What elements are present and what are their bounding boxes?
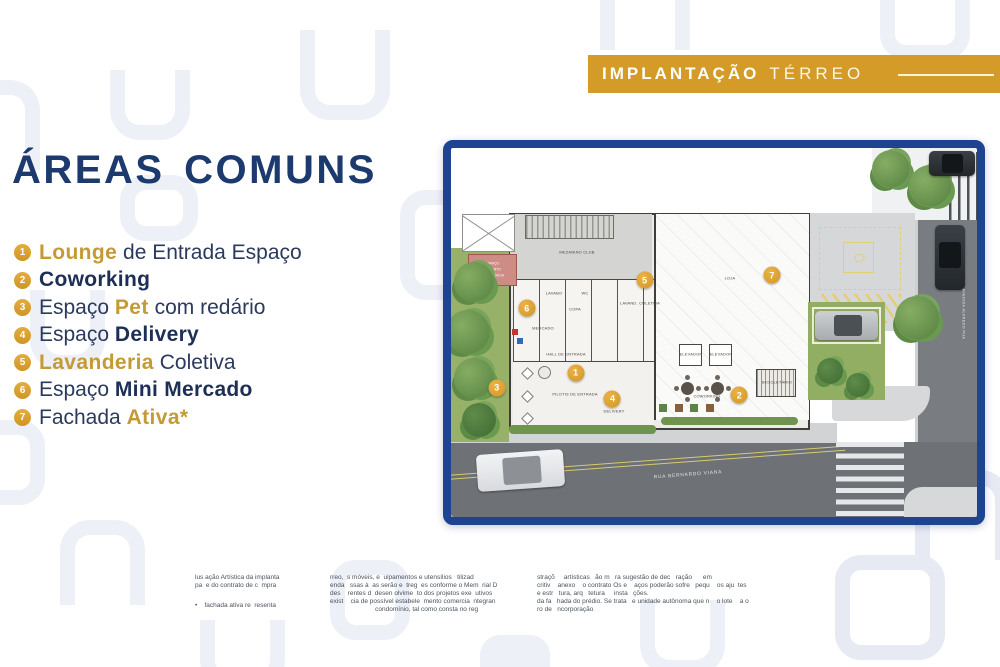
tree [454,358,494,398]
legend-number-badge: 1 [14,244,31,261]
shrub [846,373,870,397]
plan-marker-4: 4 [604,390,621,407]
existing-structure-x [462,214,516,252]
label-mercado: MERCADO [532,327,554,331]
legend-text: Pet [115,296,149,320]
disclaimer-line: lus ação Artística da implanta [195,574,280,582]
label-elevador-1: ELEVADOR [679,353,702,357]
pattern-shape [0,420,45,505]
label-lavanderia: LAVAND. COLETIVA [620,302,660,306]
legend-text: Espaço [39,323,115,347]
disclaimer-line: condomínio, tal como consta no reg [330,606,497,614]
disclaimer-line: des rentes d desen olvime to dos projeto… [330,590,497,598]
stairs-hatch [525,215,614,239]
legend-number-badge: 4 [14,327,31,344]
plan-marker-7: 7 [763,267,780,284]
legend-text: Lavanderia [39,351,154,375]
disclaimer-line: critiv anexo o contrato Os e aços poderã… [537,582,749,590]
legend-item-fachada-ativa: 7 Fachada Ativa* [14,404,302,432]
disclaimer-column-3: straçõ artísticas ão m ra sugestão de de… [537,574,749,614]
loading-zone-icon [852,251,865,264]
site-plan-panel: ESPAÇO COBERTO CONVIVÊNCIA M [443,140,985,525]
banner-divider-line [898,74,994,76]
banner-title-light: TÉRREO [769,64,864,84]
disclaimer-line: rreo, s móveis, e uipamentos e utensílio… [330,574,497,582]
legend-text: Mini Mercado [115,378,253,402]
label-coworking: COWORKING [693,395,720,399]
legend-text: Espaço [39,296,115,320]
common-areas-legend: 1 Lounge de Entrada Espaço 2 Coworking 3… [14,239,302,432]
plan-marker-2: 2 [731,387,748,404]
legend-item-delivery: 4 Espaço Delivery [14,322,302,350]
play-block-blue [517,338,523,344]
play-block-red [512,329,518,335]
legend-text: Espaço [39,378,115,402]
planter-box [690,404,698,412]
shrub [817,358,843,384]
legend-item-lounge: 1 Lounge de Entrada Espaço [14,239,302,267]
hedge [661,417,798,425]
disclaimer-column-2: rreo, s móveis, e uipamentos e utensílio… [330,574,497,614]
car-cabin [942,154,962,173]
planter-box [659,404,667,412]
label-pilotis: PILOTIS DE ENTRADA [552,393,597,397]
hedge [509,425,656,435]
legend-text: Coworking [39,268,150,292]
loading-zone-sign-box [843,242,875,273]
banner-title-bold: IMPLANTAÇÃO [602,64,759,84]
legend-item-pet: 3 Espaço Pet com redário [14,294,302,322]
planter-box [675,404,683,412]
label-avenue-name: AVENIDA ALFREDO PUA [961,289,965,340]
disclaimer-line: exist cia de possível estabele mento com… [330,598,497,606]
pattern-shape [600,0,690,50]
legend-text: de Entrada Espaço [117,241,301,265]
legend-item-coworking: 2 Coworking [14,267,302,295]
pattern-shape [60,520,145,605]
pattern-shape [300,30,390,120]
legend-number-badge: 7 [14,409,31,426]
legend-text: Coletiva [154,351,236,375]
legend-text: Delivery [115,323,199,347]
plan-marker-6: 6 [518,300,535,317]
label-loja: LOJA [724,277,735,281]
pattern-shape [880,0,970,60]
label-copa: COPA [569,308,581,312]
pattern-shape [480,635,550,667]
legend-text: Ativa* [127,406,189,430]
site-plan: ESPAÇO COBERTO CONVIVÊNCIA M [451,148,977,517]
disclaimer-line: enda ssas à as serão e treg es conforme … [330,582,497,590]
legend-number-badge: 3 [14,299,31,316]
legend-text: Lounge [39,241,117,265]
disclaimer-line: e estr tura, arq tetura insta ções. [537,590,749,598]
plan-marker-5: 5 [636,272,653,289]
car-top-right [929,151,975,176]
car-cabin [502,456,542,486]
label-delivery: DELIVERY [603,410,624,414]
legend-item-mini-mercado: 6 Espaço Mini Mercado [14,377,302,405]
car-cabin [939,242,962,268]
sidewalk-corner [904,487,977,517]
label-mezanino: MEZANINO CLUB [560,251,595,255]
label-hall: HALL DE ENTRADA [546,353,585,357]
tree [895,296,939,340]
car-avenue [935,225,966,290]
legend-number-badge: 5 [14,354,31,371]
tree [462,403,496,437]
page-title: ÁREAS COMUNS [12,148,377,193]
section-banner: IMPLANTAÇÃO TÉRREO [588,55,1000,93]
label-wc: WC [582,292,589,296]
disclaimer-line: pa e do contrato de c mpra [195,582,280,590]
pattern-shape [200,620,285,667]
disclaimer-line: • fachada ativa re resenta [195,602,280,610]
street-crosswalk [836,442,904,517]
pattern-shape [835,555,945,660]
disclaimer-line: straçõ artísticas ão m ra sugestão de de… [537,574,749,582]
label-bicicletario: BICICLETÁRIO [762,381,792,385]
disclaimer-column-1: lus ação Artística da implanta pa e do c… [195,574,280,610]
label-elevador-2: ELEVADOR [709,353,732,357]
slide: IMPLANTAÇÃO TÉRREO ÁREAS COMUNS 1 Lounge… [0,0,1000,667]
pattern-shape [110,70,190,140]
disclaimer-line: da fa hada do prédio. Se trata e unidade… [537,598,749,606]
tree [454,262,494,302]
disclaimer-line: ro de ncorporação [537,606,749,614]
plan-marker-1: 1 [567,364,584,381]
legend-number-badge: 2 [14,272,31,289]
pergola-label: ESPAÇO [486,262,500,265]
legend-text: com redário [149,296,266,320]
tree [872,150,910,188]
legend-item-lavanderia: 5 Lavanderia Coletiva [14,349,302,377]
planter-box [706,404,714,412]
car-street [476,449,565,492]
label-lavabo: LAVABO [545,292,561,296]
car-garage [815,311,878,340]
plan-marker-3: 3 [488,379,505,396]
car-cabin [834,315,862,336]
legend-text: Fachada [39,406,127,430]
round-planter [538,366,551,379]
legend-number-badge: 6 [14,382,31,399]
